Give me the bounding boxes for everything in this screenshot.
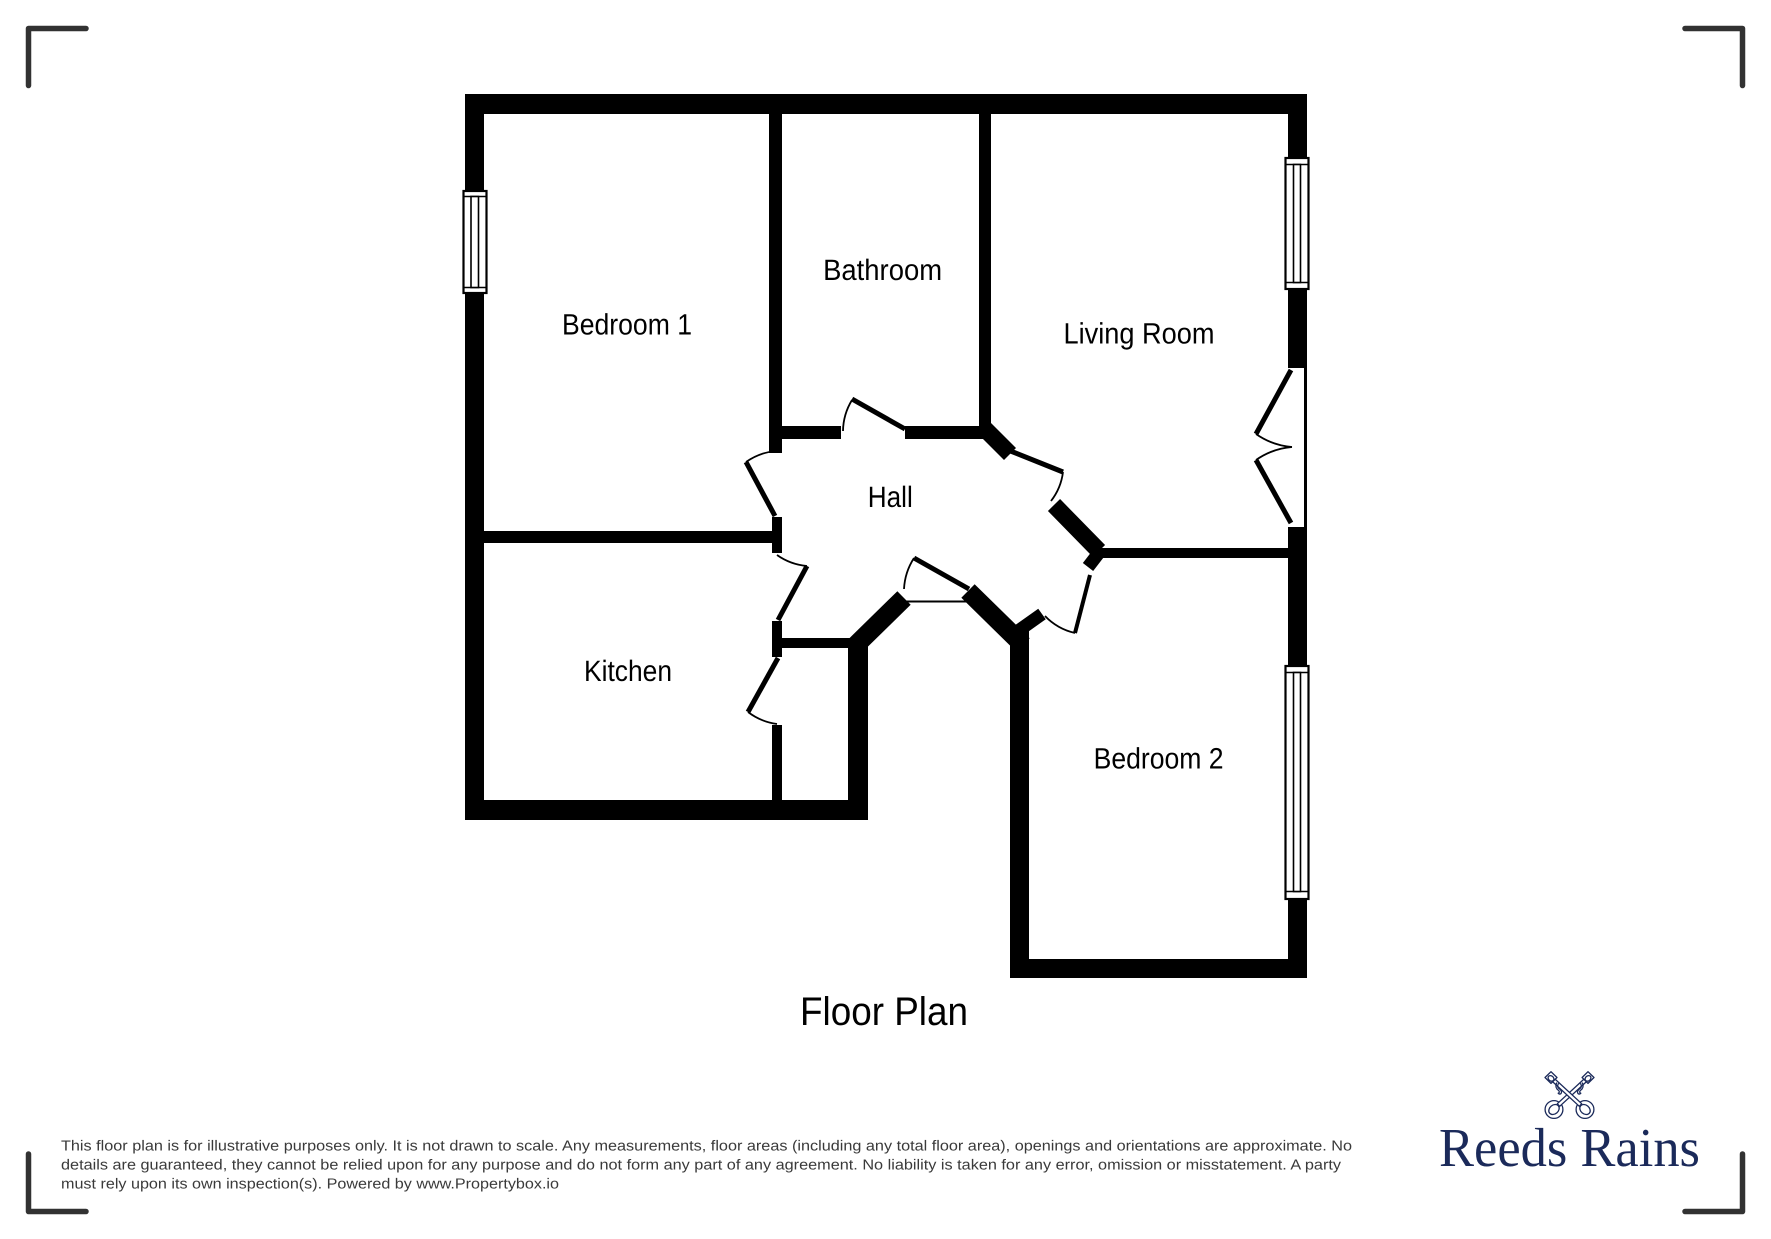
- svg-text:Hall: Hall: [868, 481, 913, 514]
- svg-text:Floor Plan: Floor Plan: [800, 990, 968, 1034]
- svg-text:Kitchen: Kitchen: [584, 655, 672, 688]
- svg-text:Reeds Rains: Reeds Rains: [1439, 1117, 1700, 1178]
- svg-text:Bedroom 2: Bedroom 2: [1094, 742, 1224, 775]
- svg-text:must rely upon its own inspect: must rely upon its own inspection(s). Po…: [61, 1176, 559, 1192]
- svg-text:details are guaranteed, they c: details are guaranteed, they cannot be r…: [61, 1158, 1342, 1174]
- svg-text:Bedroom 1: Bedroom 1: [562, 309, 692, 342]
- svg-text:This floor plan is for illustr: This floor plan is for illustrative purp…: [61, 1139, 1352, 1155]
- svg-text:Living Room: Living Room: [1064, 318, 1215, 351]
- svg-text:Bathroom: Bathroom: [823, 254, 942, 287]
